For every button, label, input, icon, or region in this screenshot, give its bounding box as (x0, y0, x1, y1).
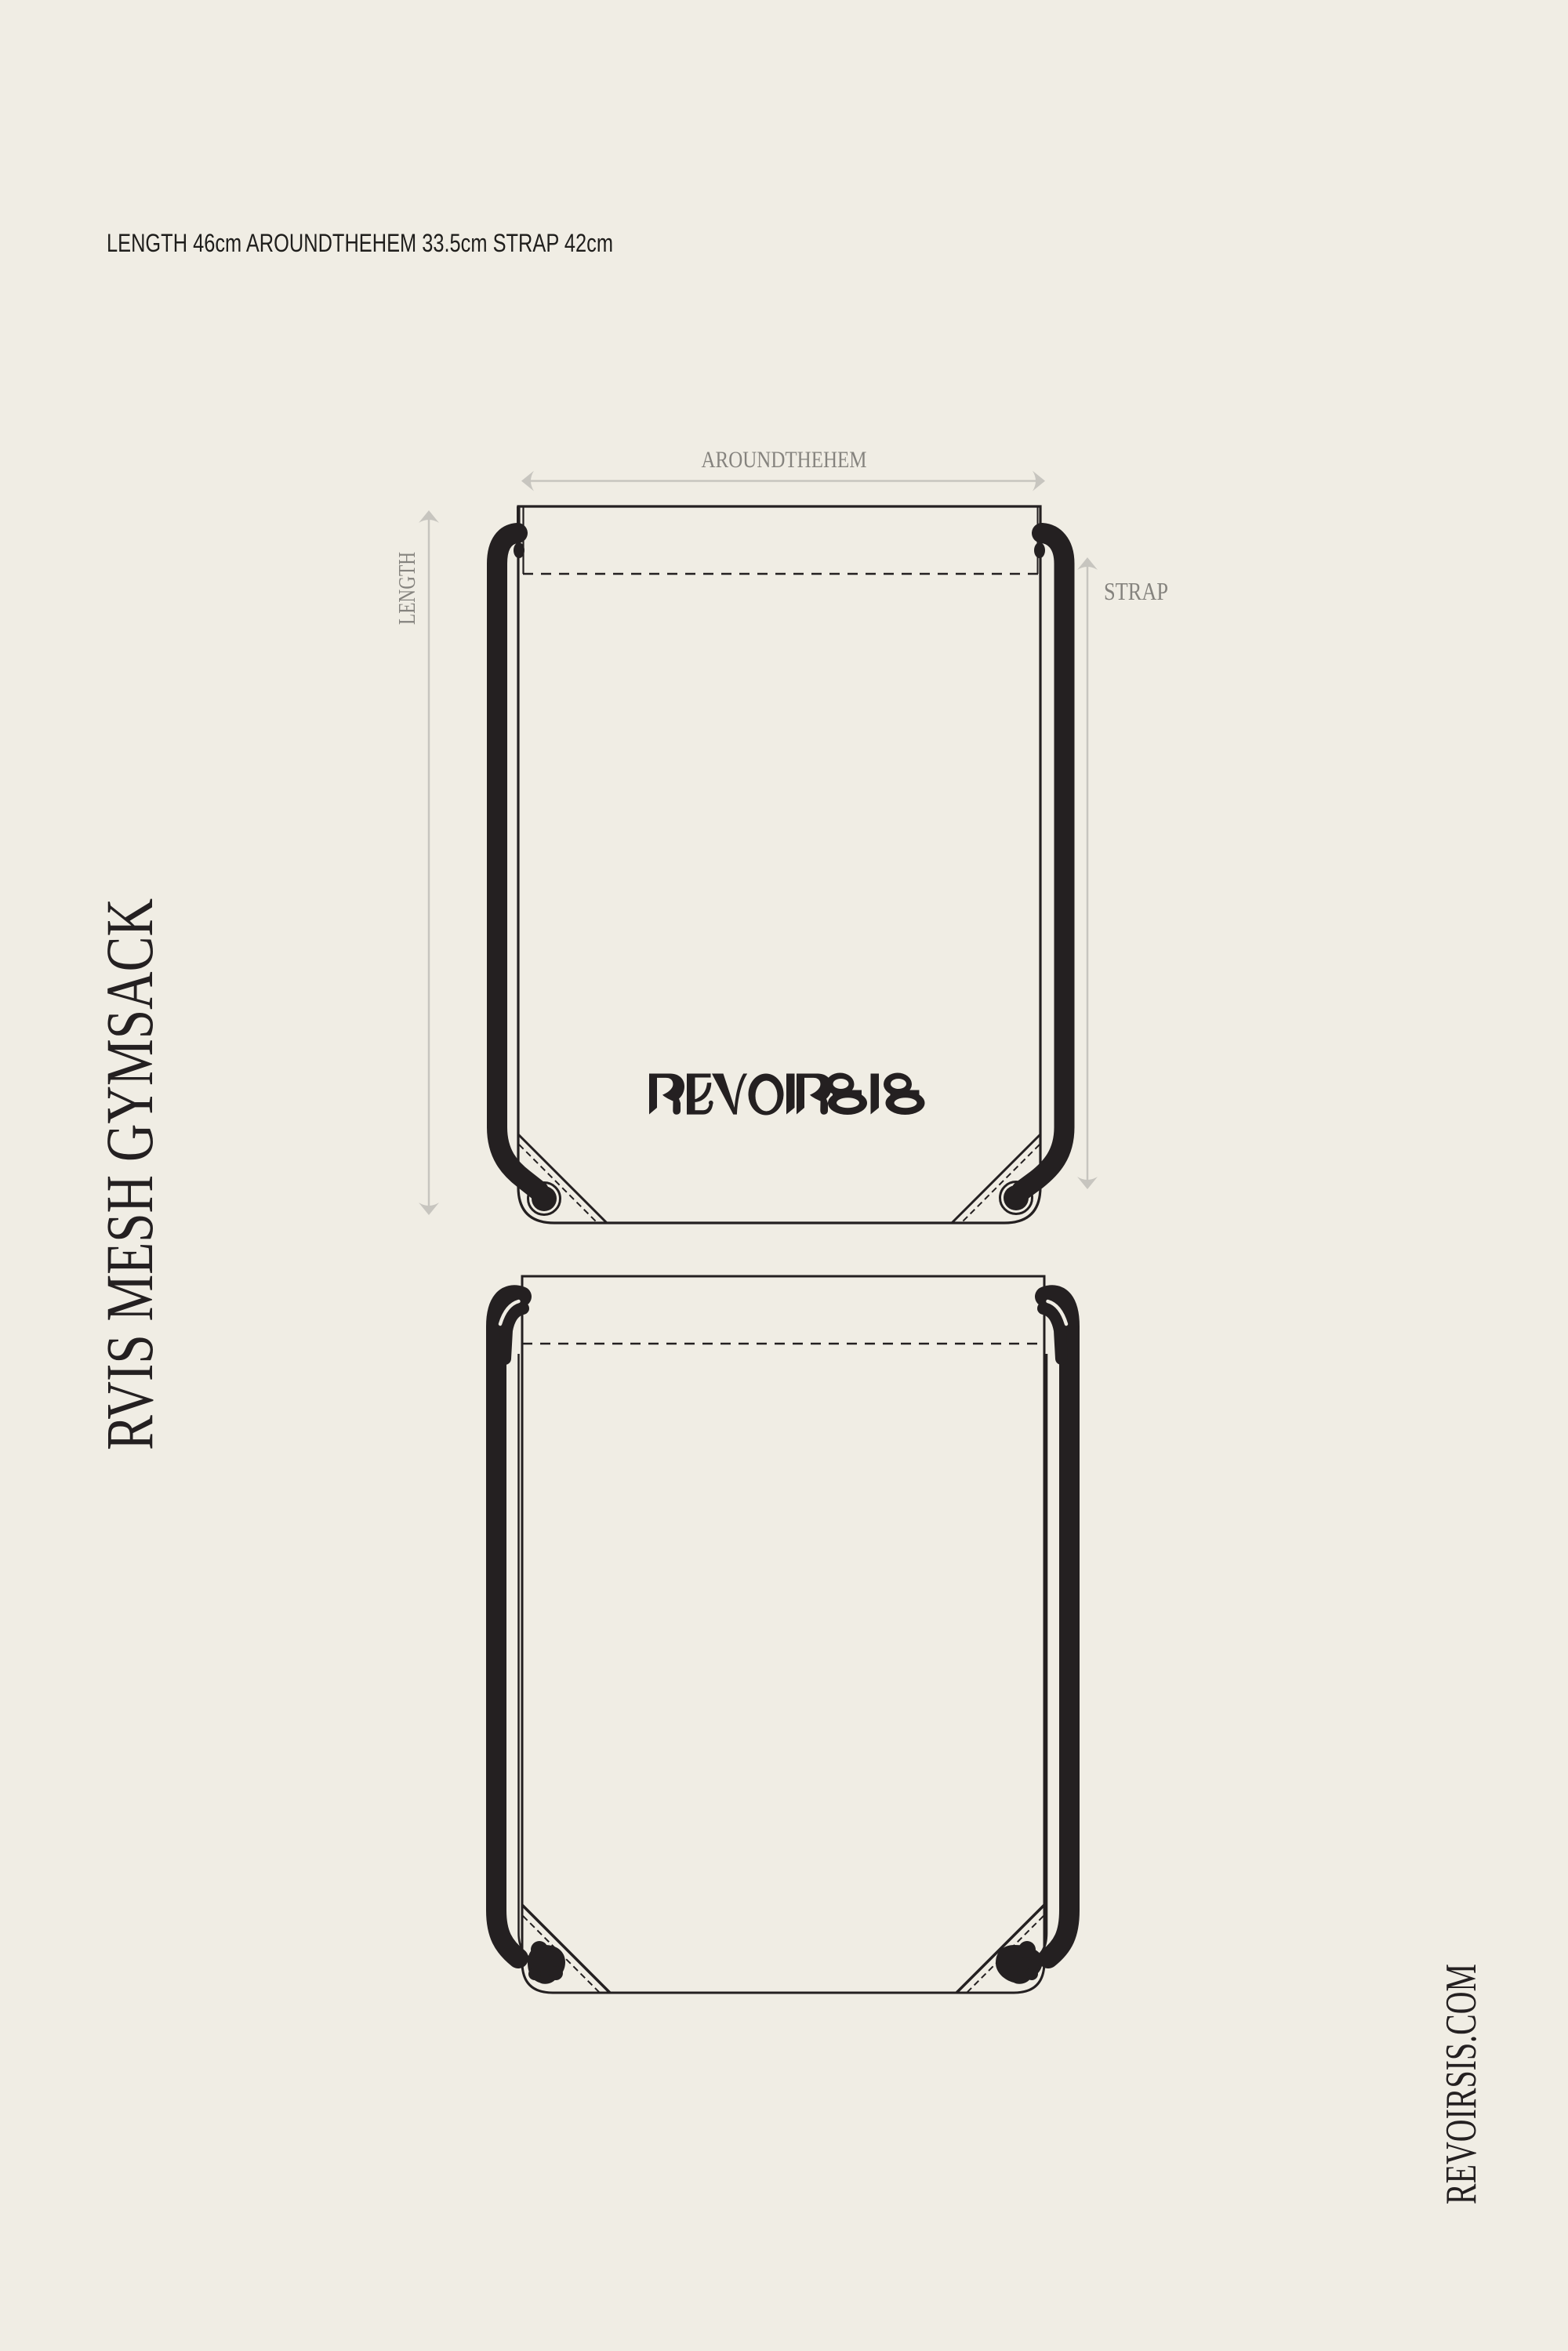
svg-text:LENGTH 46cm AROUNDTHEHEM 33.5c: LENGTH 46cm AROUNDTHEHEM 33.5cm STRAP 42… (107, 229, 613, 257)
svg-text:RVIS MESH GYMSACK: RVIS MESH GYMSACK (92, 898, 167, 1450)
svg-text:REVOIRSIS.COM: REVOIRSIS.COM (1437, 1964, 1486, 2204)
svg-text:STRAP: STRAP (1104, 577, 1168, 605)
svg-text:AROUNDTHEHEM: AROUNDTHEHEM (702, 447, 867, 473)
svg-text:LENGTH: LENGTH (393, 552, 420, 625)
